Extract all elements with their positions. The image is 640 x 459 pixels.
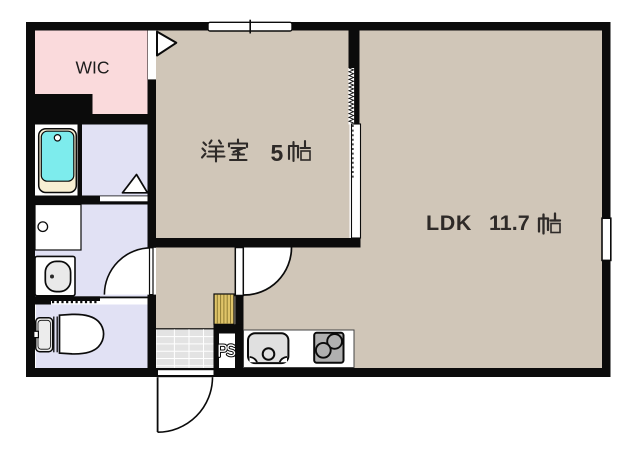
svg-text:LDK: LDK [426,211,472,235]
svg-text:WIC: WIC [75,58,109,78]
svg-text:11.7: 11.7 [489,211,530,235]
svg-text:5: 5 [271,140,284,166]
